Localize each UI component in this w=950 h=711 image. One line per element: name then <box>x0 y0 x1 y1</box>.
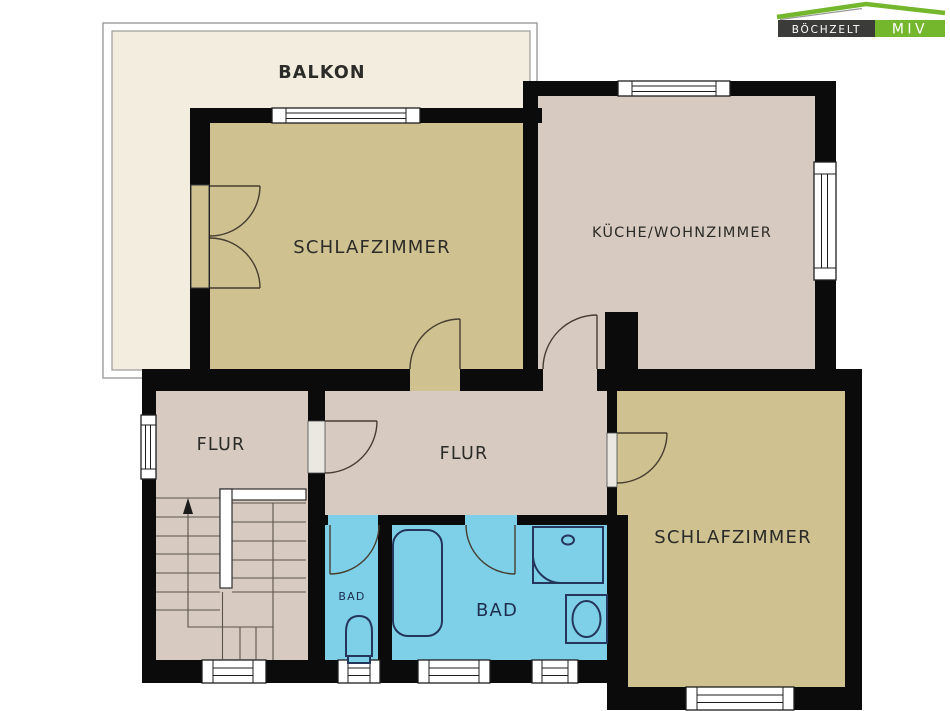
floorplan-drawing: BALKON SCHLAFZIMMER KÜCHE/WOHNZIMMER FLU… <box>0 0 950 711</box>
label-flur-left: FLUR <box>197 435 246 455</box>
window-kitchen-top <box>618 81 730 96</box>
window-kitchen-right <box>814 162 836 280</box>
label-bad-gross: BAD <box>476 600 518 621</box>
logo-roof-icon <box>777 4 945 17</box>
label-balkon: BALKON <box>278 63 366 83</box>
window-bedroom-right-bottom <box>686 687 794 710</box>
window-bad-gross-bottom-right <box>532 660 578 683</box>
stair-landing-rail <box>220 489 306 500</box>
bathtub <box>393 530 442 636</box>
logo-division-text: MIV <box>892 22 928 38</box>
label-kueche-wohnzimmer: KÜCHE/WOHNZIMMER <box>592 223 772 241</box>
label-bad-klein: BAD <box>338 590 365 603</box>
company-logo: BÖCHZELT MIV <box>777 4 945 38</box>
label-schlafzimmer-right: SCHLAFZIMMER <box>654 527 812 548</box>
window-stairs-bottom <box>202 660 266 683</box>
window-bedroom-left-top <box>272 108 420 123</box>
floorplan-page: BALKON SCHLAFZIMMER KÜCHE/WOHNZIMMER FLU… <box>0 0 950 711</box>
wall-pier <box>605 312 638 369</box>
washbasin <box>566 595 607 643</box>
window-flur-left <box>141 415 156 479</box>
stair-divider-rail <box>220 489 232 588</box>
shower-drain <box>562 536 574 545</box>
toilet <box>346 616 372 663</box>
label-schlafzimmer-left: SCHLAFZIMMER <box>293 237 451 258</box>
window-bad-gross-bottom-left <box>418 660 490 683</box>
label-flur-mitte: FLUR <box>440 444 489 464</box>
logo-brand-text: BÖCHZELT <box>792 23 862 36</box>
shower <box>533 527 603 583</box>
